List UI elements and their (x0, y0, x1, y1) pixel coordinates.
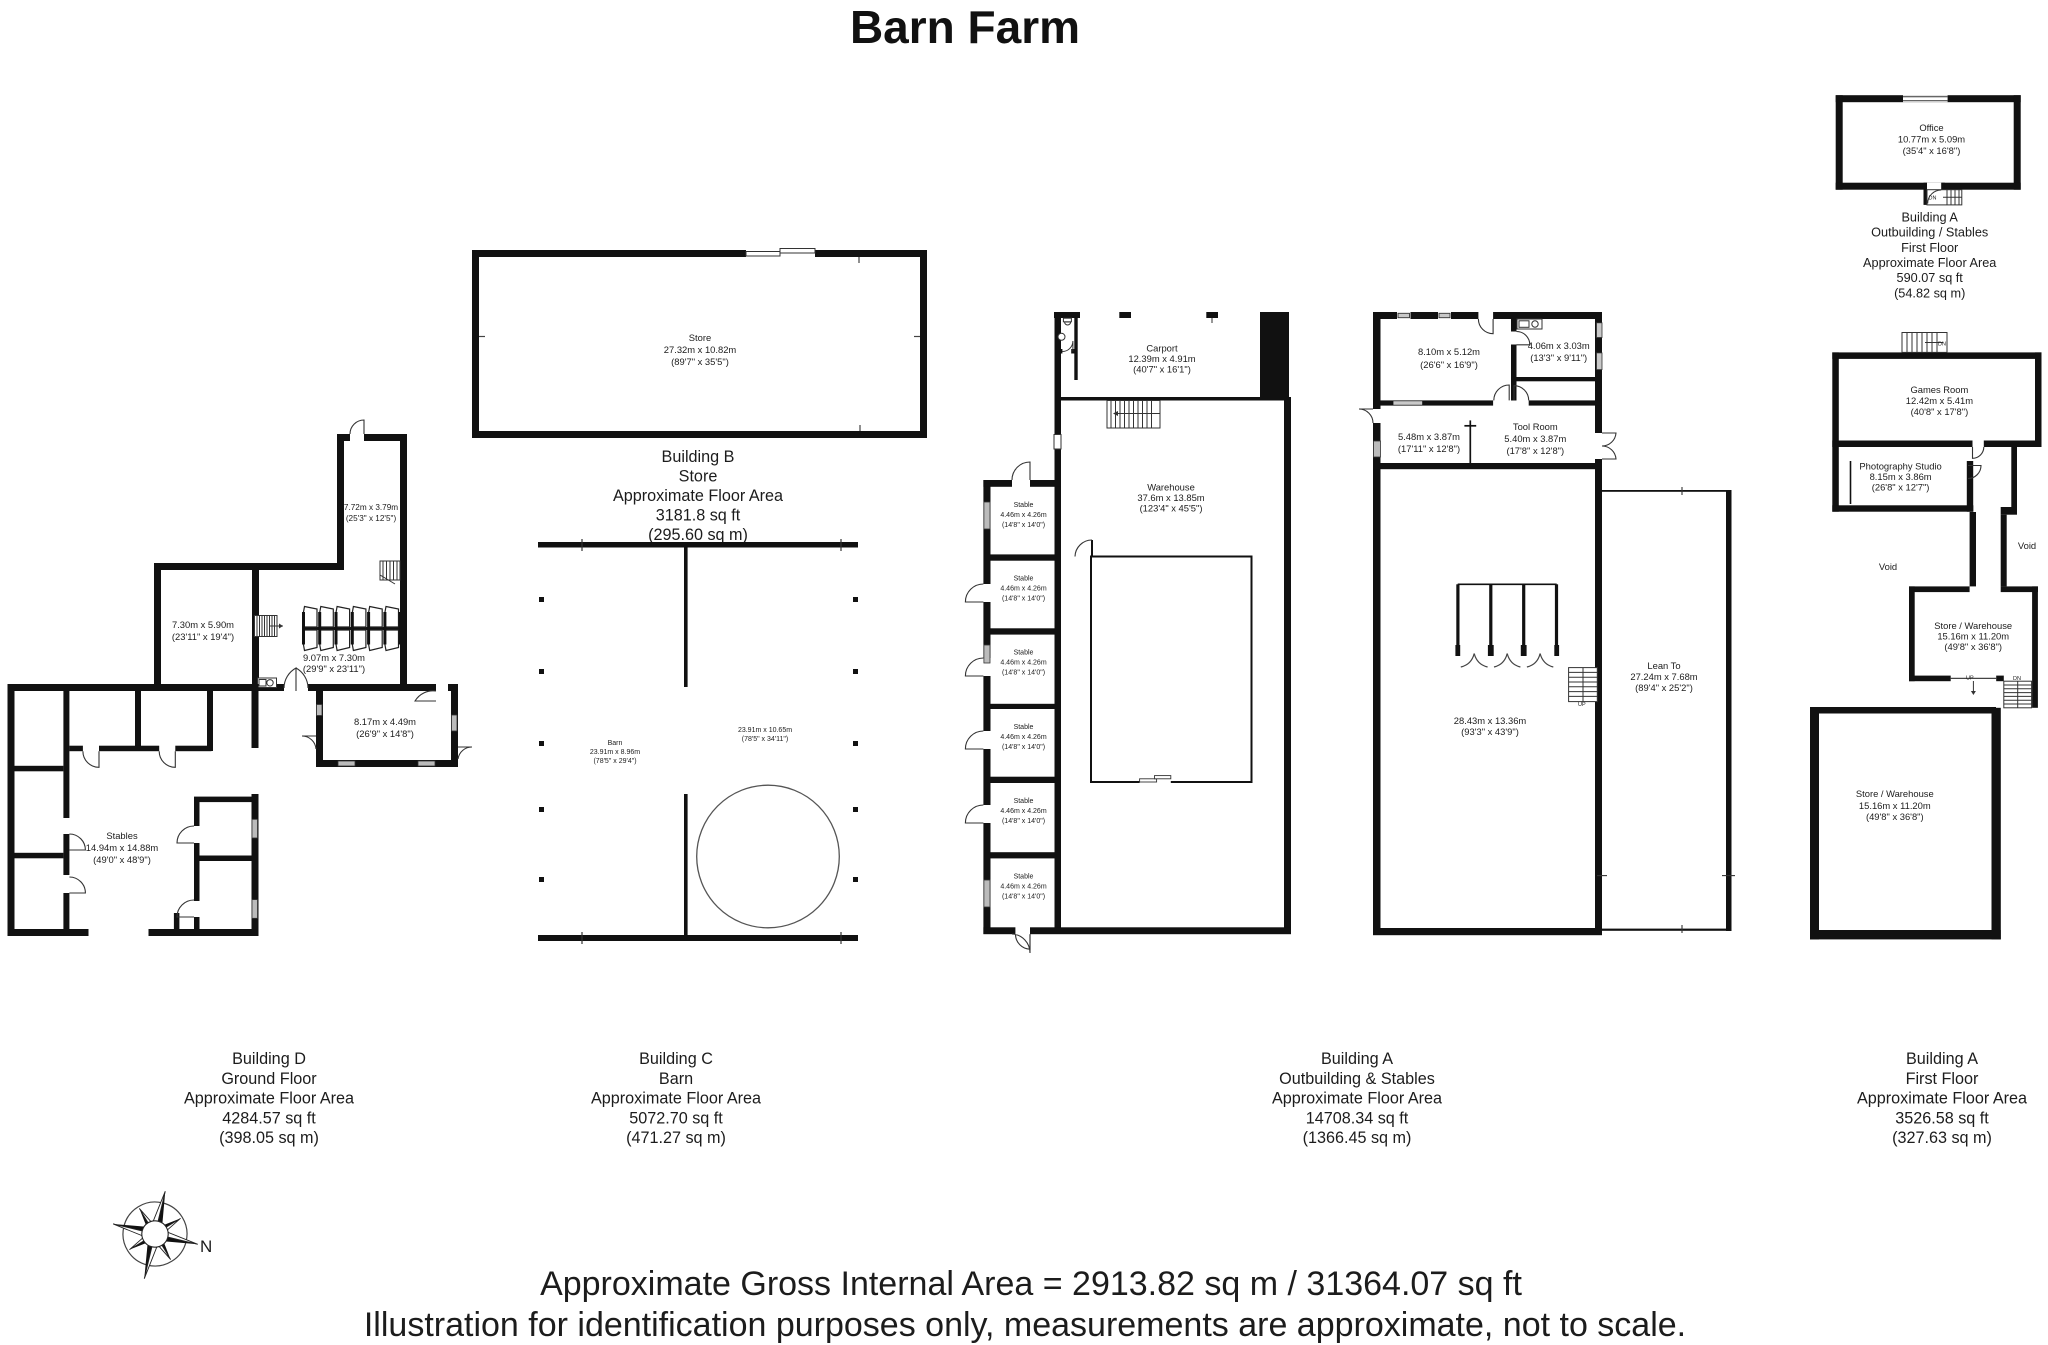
svg-text:Approximate Floor Area: Approximate Floor Area (184, 1090, 354, 1108)
svg-text:(14'8" x 14'0"): (14'8" x 14'0") (1002, 893, 1045, 900)
svg-text:5.48m x 3.87m: 5.48m x 3.87m (1398, 431, 1460, 442)
svg-text:(49'8" x 36'8"): (49'8" x 36'8") (1866, 811, 1924, 822)
svg-text:Carport: Carport (1146, 343, 1178, 354)
svg-text:37.6m x 13.85m: 37.6m x 13.85m (1137, 492, 1204, 503)
svg-text:7.72m x 3.79m: 7.72m x 3.79m (344, 503, 398, 512)
svg-text:UP: UP (1966, 676, 1974, 682)
svg-text:Store: Store (679, 468, 718, 486)
svg-text:(26'6" x 16'9"): (26'6" x 16'9") (1420, 359, 1478, 370)
svg-text:4.46m x 4.26m: 4.46m x 4.26m (1000, 512, 1046, 519)
svg-text:Void: Void (2018, 540, 2036, 551)
svg-text:14708.34 sq ft: 14708.34 sq ft (1306, 1109, 1409, 1127)
svg-text:Illustration for identificatio: Illustration for identification purposes… (364, 1306, 1686, 1344)
svg-text:23.91m x 8.96m: 23.91m x 8.96m (590, 749, 640, 756)
svg-text:4.46m x 4.26m: 4.46m x 4.26m (1000, 734, 1046, 741)
svg-text:5.40m x 3.87m: 5.40m x 3.87m (1504, 433, 1566, 444)
svg-text:(327.63 sq m): (327.63 sq m) (1892, 1129, 1992, 1147)
svg-text:(14'8" x 14'0"): (14'8" x 14'0") (1002, 818, 1045, 825)
svg-text:Building C: Building C (639, 1050, 713, 1068)
svg-text:27.24m x 7.68m: 27.24m x 7.68m (1630, 671, 1697, 682)
svg-text:9.07m x 7.30m: 9.07m x 7.30m (303, 652, 365, 663)
svg-text:8.17m x 4.49m: 8.17m x 4.49m (354, 716, 416, 727)
svg-text:N: N (200, 1237, 212, 1256)
svg-text:Outbuilding & Stables: Outbuilding & Stables (1279, 1070, 1435, 1088)
svg-text:10.77m x 5.09m: 10.77m x 5.09m (1898, 134, 1965, 145)
svg-text:3181.8 sq ft: 3181.8 sq ft (656, 507, 741, 525)
svg-text:(471.27 sq m): (471.27 sq m) (626, 1129, 726, 1147)
svg-text:4.46m x 4.26m: 4.46m x 4.26m (1000, 883, 1046, 890)
svg-text:Approximate Gross Internal Are: Approximate Gross Internal Area = 2913.8… (540, 1265, 1522, 1303)
svg-text:(40'7" x 16'1"): (40'7" x 16'1") (1133, 364, 1191, 375)
svg-text:5072.70 sq ft: 5072.70 sq ft (629, 1109, 723, 1127)
svg-text:4.46m x 4.26m: 4.46m x 4.26m (1000, 660, 1046, 667)
svg-text:28.43m x 13.36m: 28.43m x 13.36m (1454, 715, 1527, 726)
svg-text:(398.05 sq m): (398.05 sq m) (219, 1129, 319, 1147)
svg-text:Approximate Floor Area: Approximate Floor Area (1863, 256, 1997, 270)
svg-text:(49'8" x 36'8"): (49'8" x 36'8") (1944, 641, 2002, 652)
svg-text:7.30m x 5.90m: 7.30m x 5.90m (172, 619, 234, 630)
svg-text:(295.60 sq m): (295.60 sq m) (648, 526, 748, 544)
svg-text:15.16m x 11.20m: 15.16m x 11.20m (1859, 800, 1931, 811)
svg-text:(123'4" x 45'5"): (123'4" x 45'5") (1140, 503, 1203, 514)
svg-text:12.39m x 4.91m: 12.39m x 4.91m (1128, 353, 1195, 364)
svg-text:Stable: Stable (1014, 873, 1034, 880)
svg-text:Stable: Stable (1014, 502, 1034, 509)
svg-text:Office: Office (1919, 122, 1943, 133)
svg-text:(89'4" x 25'2"): (89'4" x 25'2") (1635, 682, 1693, 693)
svg-text:(25'3" x 12'5"): (25'3" x 12'5") (346, 514, 397, 523)
svg-text:(14'8" x 14'0"): (14'8" x 14'0") (1002, 596, 1045, 603)
svg-text:Building D: Building D (232, 1050, 306, 1068)
svg-text:(1366.45 sq m): (1366.45 sq m) (1303, 1129, 1412, 1147)
svg-text:27.32m x 10.82m: 27.32m x 10.82m (664, 344, 737, 355)
svg-text:(78'5" x 34'11"): (78'5" x 34'11") (742, 736, 788, 743)
svg-text:Building A: Building A (1906, 1050, 1978, 1068)
svg-text:UP: UP (1578, 702, 1586, 708)
svg-text:12.42m x 5.41m: 12.42m x 5.41m (1906, 395, 1973, 406)
svg-text:First Floor: First Floor (1901, 241, 1959, 255)
svg-text:(78'5" x 29'4"): (78'5" x 29'4") (593, 758, 636, 765)
svg-text:Photography Studio: Photography Studio (1859, 461, 1941, 472)
svg-text:(14'8" x 14'0"): (14'8" x 14'0") (1002, 744, 1045, 751)
svg-text:(54.82 sq m): (54.82 sq m) (1894, 286, 1965, 300)
svg-text:Approximate Floor Area: Approximate Floor Area (1272, 1090, 1442, 1108)
svg-text:First Floor: First Floor (1906, 1070, 1979, 1088)
svg-text:(29'9" x 23'11"): (29'9" x 23'11") (303, 663, 365, 674)
svg-text:Stable: Stable (1014, 650, 1034, 657)
svg-text:(26'9" x 14'8"): (26'9" x 14'8") (356, 728, 414, 739)
svg-text:(23'11" x 19'4"): (23'11" x 19'4") (172, 631, 234, 642)
svg-text:(89'7" x 35'5"): (89'7" x 35'5") (671, 356, 729, 367)
svg-text:Ground Floor: Ground Floor (221, 1070, 317, 1088)
svg-text:Approximate Floor Area: Approximate Floor Area (613, 487, 783, 505)
svg-text:4284.57 sq ft: 4284.57 sq ft (222, 1109, 316, 1127)
svg-text:(26'8" x 12'7"): (26'8" x 12'7") (1872, 482, 1930, 493)
svg-text:8.10m x 5.12m: 8.10m x 5.12m (1418, 346, 1480, 357)
svg-text:23.91m x 10.65m: 23.91m x 10.65m (738, 727, 792, 734)
svg-text:(49'0" x 48'9"): (49'0" x 48'9") (93, 854, 151, 865)
svg-text:(13'3" x 9'11"): (13'3" x 9'11") (1530, 352, 1587, 363)
svg-text:Barn: Barn (659, 1070, 693, 1088)
svg-text:Approximate Floor Area: Approximate Floor Area (1857, 1090, 2027, 1108)
svg-text:Tool Room: Tool Room (1513, 421, 1558, 432)
svg-text:Barn Farm: Barn Farm (850, 1, 1080, 53)
svg-text:8.15m x 3.86m: 8.15m x 3.86m (1870, 471, 1932, 482)
svg-text:Building B: Building B (662, 448, 735, 466)
svg-text:Stables: Stables (106, 830, 138, 841)
svg-text:Store / Warehouse: Store / Warehouse (1934, 620, 2012, 631)
svg-text:Stable: Stable (1014, 724, 1034, 731)
svg-text:Approximate Floor Area: Approximate Floor Area (591, 1090, 761, 1108)
svg-text:590.07 sq ft: 590.07 sq ft (1897, 271, 1964, 285)
svg-text:(14'8" x 14'0"): (14'8" x 14'0") (1002, 670, 1045, 677)
svg-text:Stable: Stable (1014, 576, 1034, 583)
svg-text:(17'8" x 12'8"): (17'8" x 12'8") (1506, 445, 1564, 456)
svg-text:Store: Store (689, 332, 711, 343)
svg-text:Outbuilding / Stables: Outbuilding / Stables (1871, 226, 1988, 240)
svg-text:(35'4" x 16'8"): (35'4" x 16'8") (1903, 145, 1961, 156)
svg-text:Void: Void (1879, 561, 1897, 572)
svg-text:Stable: Stable (1014, 798, 1034, 805)
svg-text:Store / Warehouse: Store / Warehouse (1856, 788, 1934, 799)
svg-text:(40'8" x 17'8"): (40'8" x 17'8") (1911, 406, 1969, 417)
svg-text:3526.58 sq ft: 3526.58 sq ft (1895, 1109, 1989, 1127)
svg-text:(17'11" x 12'8"): (17'11" x 12'8") (1398, 443, 1460, 454)
svg-text:15.16m x 11.20m: 15.16m x 11.20m (1937, 631, 2009, 642)
svg-text:DN: DN (1938, 342, 1946, 348)
svg-text:14.94m x 14.88m: 14.94m x 14.88m (86, 842, 159, 853)
svg-text:Building A: Building A (1901, 211, 1958, 225)
svg-text:DN: DN (1929, 196, 1937, 202)
svg-text:4.06m x 3.03m: 4.06m x 3.03m (1528, 340, 1590, 351)
svg-text:Games Room: Games Room (1910, 384, 1968, 395)
svg-text:Lean To: Lean To (1647, 660, 1680, 671)
svg-text:Warehouse: Warehouse (1147, 482, 1195, 493)
svg-text:4.46m x 4.26m: 4.46m x 4.26m (1000, 586, 1046, 593)
svg-text:Building A: Building A (1321, 1050, 1393, 1068)
svg-text:4.46m x 4.26m: 4.46m x 4.26m (1000, 808, 1046, 815)
svg-text:(14'8" x 14'0"): (14'8" x 14'0") (1002, 522, 1045, 529)
svg-text:(93'3" x 43'9"): (93'3" x 43'9") (1461, 726, 1519, 737)
svg-text:Barn: Barn (608, 740, 623, 747)
